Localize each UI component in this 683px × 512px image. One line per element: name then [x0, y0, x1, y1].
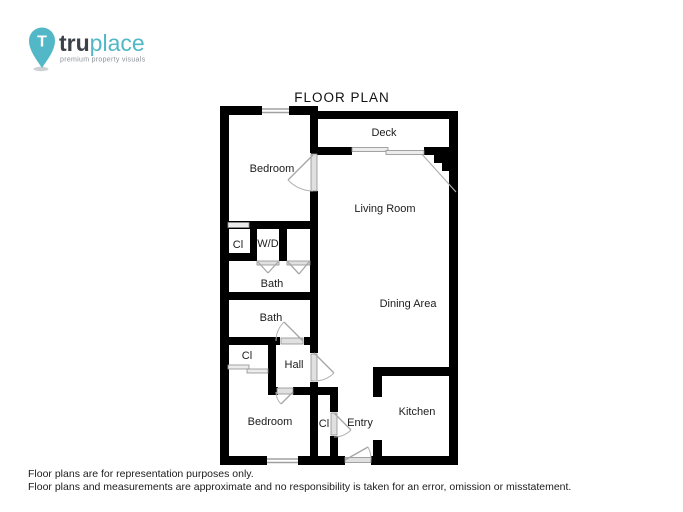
wall-segment — [289, 106, 318, 115]
window-bedroom-bottom — [267, 459, 298, 463]
floor-plan-image: T truplace premium property visuals FLOO… — [0, 0, 683, 512]
room-label-closet-entry: Cl — [319, 418, 329, 430]
room-label-bedroom-top: Bedroom — [250, 163, 295, 175]
room-label-entry: Entry — [347, 417, 373, 429]
disclaimer-line-1: Floor plans are for representation purpo… — [28, 468, 254, 480]
room-label-closet-top: Cl — [233, 239, 243, 251]
wall-segment — [371, 456, 458, 465]
wall-segment — [293, 387, 338, 395]
wall-segment — [220, 337, 280, 345]
wall-segment — [250, 229, 257, 261]
room-label-closet-bedroom: Cl — [242, 350, 252, 362]
disclaimer-line-2: Floor plans and measurements are approxi… — [28, 481, 571, 493]
room-label-hall: Hall — [285, 359, 304, 371]
wall-segment — [304, 337, 318, 345]
sliding-door-closet-bedroom — [228, 365, 268, 373]
wall-segment — [220, 106, 229, 465]
window-bedroom-top — [262, 109, 289, 113]
wall-segment — [220, 106, 262, 115]
room-label-living-room: Living Room — [354, 203, 415, 215]
door-bifold-bath-upper — [287, 261, 310, 274]
wall-segment — [373, 367, 382, 397]
door-hall-bedroom — [276, 388, 293, 404]
sliding-door-closet-top — [228, 223, 249, 228]
page-title: FLOOR PLAN — [294, 90, 390, 105]
wall-segment — [373, 367, 458, 376]
logo-tagline: premium property visuals — [60, 57, 146, 64]
door-front-entry — [345, 447, 371, 463]
wall-segment — [220, 292, 318, 300]
brand-text-bold: tru — [59, 30, 90, 56]
room-label-dining-area: Dining Area — [380, 298, 438, 310]
corner-stairs — [426, 147, 458, 179]
wall-segment — [279, 229, 287, 261]
wall-segment — [318, 111, 458, 119]
room-label-bath-lower: Bath — [260, 312, 283, 324]
wall-segment — [330, 395, 338, 412]
door-bath-lower — [276, 322, 303, 344]
door-hall-dining — [311, 353, 334, 381]
room-label-deck: Deck — [371, 127, 397, 139]
logo-pin-letter: T — [37, 34, 47, 51]
door-bifold-washer-dryer — [257, 261, 279, 273]
wall-segment — [220, 253, 250, 261]
wall-segment — [220, 456, 267, 465]
room-label-kitchen: Kitchen — [399, 406, 436, 418]
room-label-bath-upper: Bath — [261, 278, 284, 290]
room-label-bedroom-bottom: Bedroom — [248, 416, 293, 428]
brand-text-light: place — [90, 30, 145, 56]
logo-pin-shadow — [34, 67, 49, 71]
room-label-washer-dryer: W/D — [257, 238, 278, 250]
wall-segment — [310, 191, 318, 353]
wall-segment — [298, 456, 345, 465]
sliding-door-deck — [352, 148, 424, 155]
logo: T truplace premium property visuals — [29, 27, 146, 71]
brand-text: truplace — [59, 30, 145, 56]
